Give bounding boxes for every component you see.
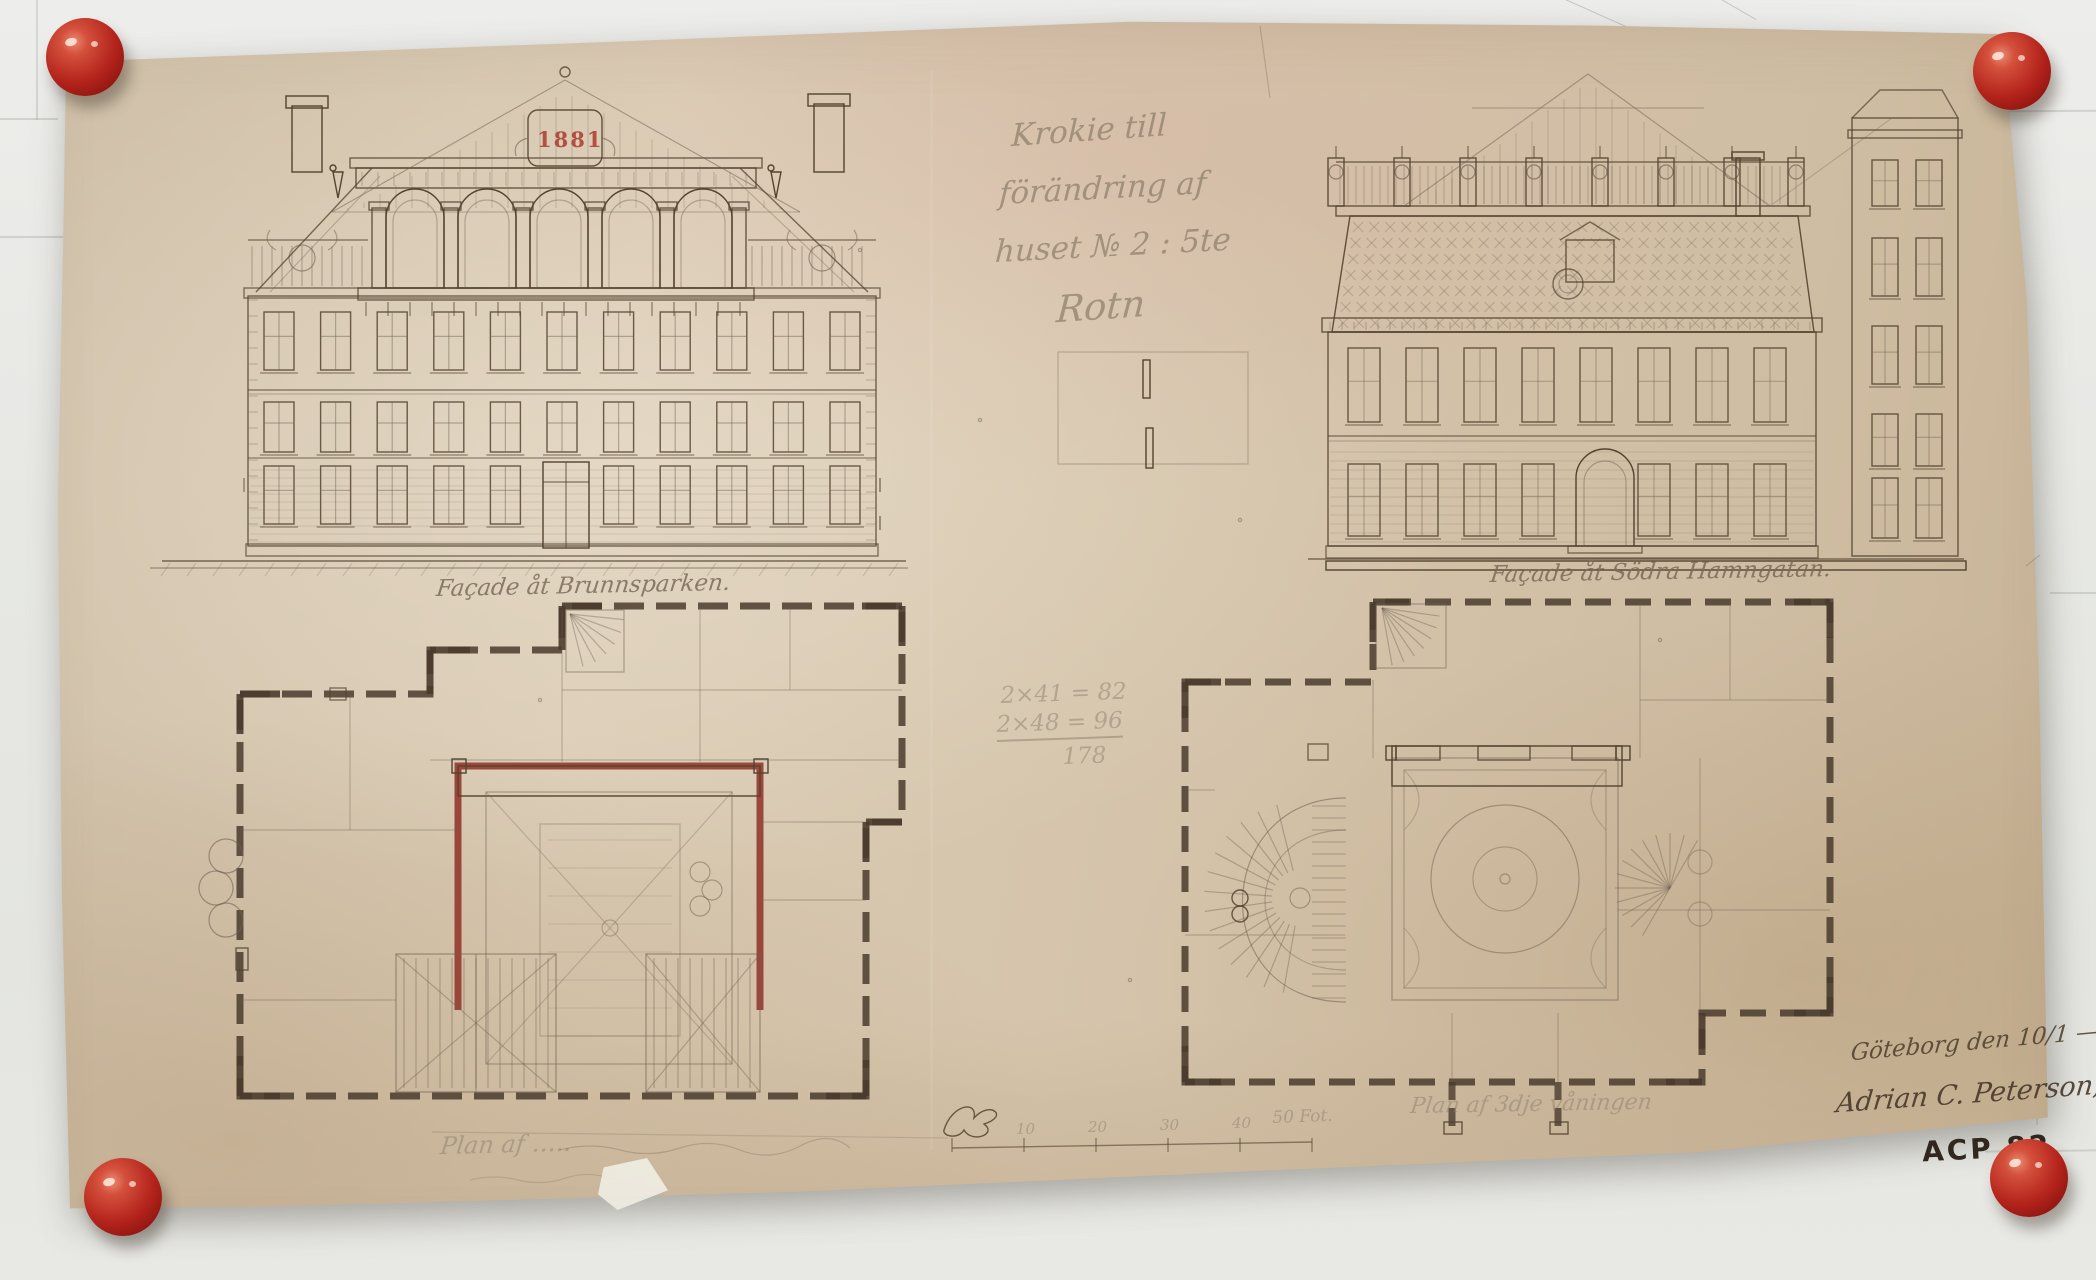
calculation-total: 178	[1062, 742, 1107, 770]
plan-right-caption: Plan af 3dje våningen	[1409, 1090, 1654, 1119]
photograph-of-architectural-drawing: { "artifact": { "title_block": { "line1"…	[0, 0, 2096, 1280]
red-pin-bottom-right	[1990, 1139, 2068, 1217]
date-cartouche-1881: 1881	[537, 127, 603, 152]
red-pin-bottom-left	[84, 1158, 162, 1236]
title-block-line-4: Rotn	[1055, 282, 1147, 332]
calculation-line-2: 2×48 = 96	[996, 708, 1123, 742]
red-pin-top-right	[1973, 32, 2051, 110]
scale-tick-label-30: 30	[1160, 1116, 1179, 1134]
calculation-line-1: 2×41 = 82	[1000, 679, 1127, 709]
scale-tick-label-40: 40	[1232, 1114, 1251, 1132]
scale-end-label: 50 Fot.	[1272, 1106, 1333, 1128]
red-pin-top-left	[46, 18, 124, 96]
scale-tick-label-10: 10	[1016, 1120, 1035, 1138]
plan-left-caption: Plan af …..	[439, 1129, 573, 1161]
paper-crease	[930, 70, 933, 1150]
scale-tick-label-20: 20	[1088, 1118, 1107, 1136]
